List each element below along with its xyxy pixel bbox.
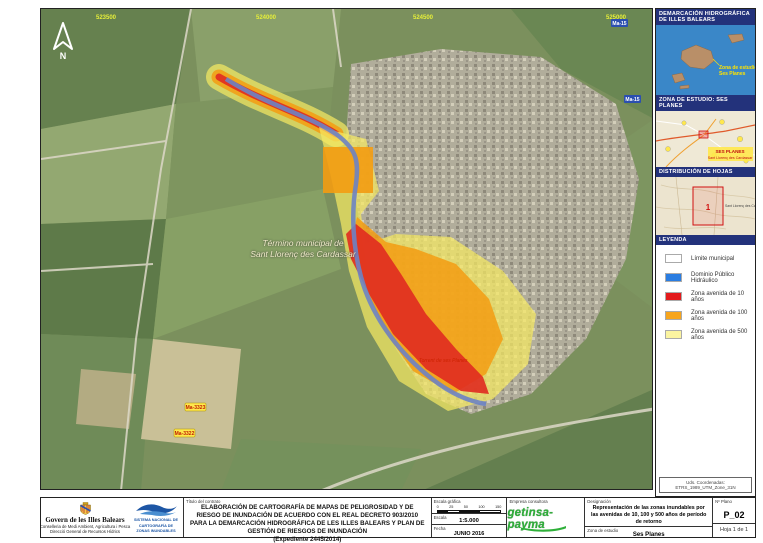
title-block: Govern de les Illes Balears Conselleria …	[40, 497, 756, 538]
svg-text:Término municipal de: Término municipal de	[262, 238, 344, 248]
numeric-scale-row: Escala 1:5.000	[432, 514, 507, 525]
scale-cell: Escala gráfica 0 25 50 100 150	[432, 498, 508, 537]
snczi-text2: CARTOGRAFÍA DE	[139, 524, 173, 529]
roadmap-label-line2: Sant Llorenç des Cardassar	[708, 156, 753, 160]
snczi-logo-block: SISTEMA NACIONAL DE CARTOGRAFÍA DE ZONAS…	[129, 498, 183, 537]
study-zone-inset[interactable]: SES PLANES Sant Llorenç des Cardassar	[656, 111, 755, 167]
consultant-label: Empresa consultora	[509, 499, 547, 504]
consultant-cell: Empresa consultora getinsa-payma	[507, 498, 585, 537]
designation-label: Designación	[587, 499, 611, 504]
legend-item-limite-municipal: Límite municipal	[656, 249, 755, 268]
plan-number-cell: Nº Plano P_02 Hoja 1 de 1	[713, 498, 755, 537]
sheet-count-row: Hoja 1 de 1	[713, 524, 755, 537]
legend-item-10-anos: Zona avenida de 10 años	[656, 287, 755, 306]
topo-town-label: Sant Llorenç des Cardassar	[725, 204, 755, 208]
legend-swatch-10yr	[665, 292, 682, 301]
road-shield-yellow-1: Ma-3323	[186, 405, 206, 411]
torrent-label: Torrent de ses Planes	[419, 358, 468, 364]
legend: Límite municipal Dominio Público Hidrául…	[656, 245, 755, 344]
plan-number-label: Nº Plano	[715, 499, 732, 504]
legend-label: Zona avenida de 10 años	[691, 291, 755, 303]
date-label: Fecha	[434, 526, 446, 531]
study-zone-label: Zona de estudio	[587, 528, 618, 533]
graphic-scale-row: Escala gráfica 0 25 50 100 150	[432, 498, 507, 514]
plan-number-row: Nº Plano P_02	[713, 498, 755, 524]
project-title-cell: Título del contrato ELABORACIÓN DE CARTO…	[184, 498, 432, 537]
hoja-number: 1	[706, 203, 711, 212]
sidebar: DEMARCACIÓN HIDROGRÁFICA DE ILLES BALEAR…	[655, 8, 756, 497]
scale-tick: 100	[478, 505, 484, 509]
scale-tick: 50	[464, 505, 468, 509]
project-expediente: (Expediente 2445/2014)	[184, 536, 431, 543]
legend-label: Dominio Público Hidráulico	[691, 272, 755, 284]
snczi-wave-icon	[134, 501, 178, 517]
govern-sub2: Direcció General de Recursos Hídrics	[50, 529, 120, 534]
grid-label-3: 524500	[413, 15, 434, 21]
roadmap-label-line1: SES PLANES	[715, 149, 744, 154]
road-shield-yellow-2: Ma-3322	[175, 431, 195, 437]
plan-number-value: P_02	[713, 510, 755, 520]
logos-cell: Govern de les Illes Balears Conselleria …	[41, 498, 184, 537]
north-letter: N	[60, 51, 67, 61]
legend-label: Zona avenida de 100 años	[691, 310, 755, 322]
legend-item-500-anos: Zona avenida de 500 años	[656, 325, 755, 344]
legend-label: Límite municipal	[691, 256, 734, 262]
legend-swatch-500yr	[665, 330, 682, 339]
scale-label: Escala	[434, 515, 447, 520]
sidebar-panel2-title: ZONA DE ESTUDIO: SES PLANES	[656, 95, 755, 111]
svg-text:Sant Llorenç des Cardassar: Sant Llorenç des Cardassar	[250, 249, 357, 259]
sidebar-panel1-title: DEMARCACIÓN HIDROGRÁFICA DE ILLES BALEAR…	[656, 9, 755, 25]
date-value: JUNIO 2016	[432, 531, 507, 537]
project-title-label: Título del contrato	[186, 499, 220, 504]
sidebar-panel3-title: DISTRIBUCIÓN DE HOJAS	[656, 167, 755, 177]
scale-tick: 0	[437, 505, 439, 509]
scale-bar: 0 25 50 100 150	[437, 505, 502, 513]
sheet-count-value: Hoja 1 de 1	[713, 527, 755, 533]
govern-logo-block: Govern de les Illes Balears Conselleria …	[41, 498, 129, 537]
grid-label-2: 524000	[256, 15, 277, 21]
getinsa-swoosh-icon	[521, 526, 566, 532]
aerial-map-canvas: 523500 524000 524500 525000 Ma-3323 Ma-3…	[41, 9, 653, 490]
legend-swatch-dph	[665, 273, 682, 282]
map-sheet: 523500 524000 524500 525000 Ma-3323 Ma-3…	[0, 0, 763, 543]
graphic-scale-label: Escala gráfica	[434, 499, 461, 504]
islands-overview-inset[interactable]: Zona de estudio Ses Planes	[656, 25, 755, 95]
legend-label: Zona avenida de 500 años	[691, 329, 755, 341]
study-zone-row: Zona de estudio Ses Planes	[585, 527, 712, 538]
scale-tick: 150	[495, 505, 501, 509]
govern-name: Govern de les Illes Balears	[45, 516, 124, 524]
islands-label-line2: Ses Planes	[719, 71, 746, 77]
road-shield-blue-1: Ma-15	[612, 21, 626, 27]
sidebar-panel4-title: LEYENDA	[656, 235, 755, 245]
legend-item-dominio-publico: Dominio Público Hidráulico	[656, 268, 755, 287]
legend-swatch-limite	[665, 254, 682, 263]
snczi-text3: ZONAS INUNDABLES	[136, 529, 175, 534]
designation-row: Designación Representación de las zonas …	[585, 498, 712, 527]
grid-label-1: 523500	[96, 15, 117, 21]
municipality-label: Término municipal de Sant Llorenç des Ca…	[250, 238, 357, 259]
designation-cell: Designación Representación de las zonas …	[585, 498, 713, 537]
main-map[interactable]: 523500 524000 524500 525000 Ma-3323 Ma-3…	[40, 8, 653, 490]
legend-item-100-anos: Zona avenida de 100 años	[656, 306, 755, 325]
flood-block-100yr	[323, 147, 373, 193]
project-title: ELABORACIÓN DE CARTOGRAFÍA DE MAPAS DE P…	[184, 498, 431, 536]
scale-tick: 25	[449, 505, 453, 509]
govern-shield-icon	[79, 502, 92, 515]
date-row: Fecha JUNIO 2016	[432, 525, 507, 537]
snczi-text1: SISTEMA NACIONAL DE	[134, 518, 178, 523]
road-shield-blue-2: Ma-15	[625, 97, 639, 103]
coordinate-system-note: Uds. Coordenadas: ETRS_1989_UTM_Zone_31N	[659, 477, 752, 493]
legend-swatch-100yr	[665, 311, 682, 320]
sheet-distribution-inset[interactable]: 1 Sant Llorenç des Cardassar	[656, 177, 755, 235]
